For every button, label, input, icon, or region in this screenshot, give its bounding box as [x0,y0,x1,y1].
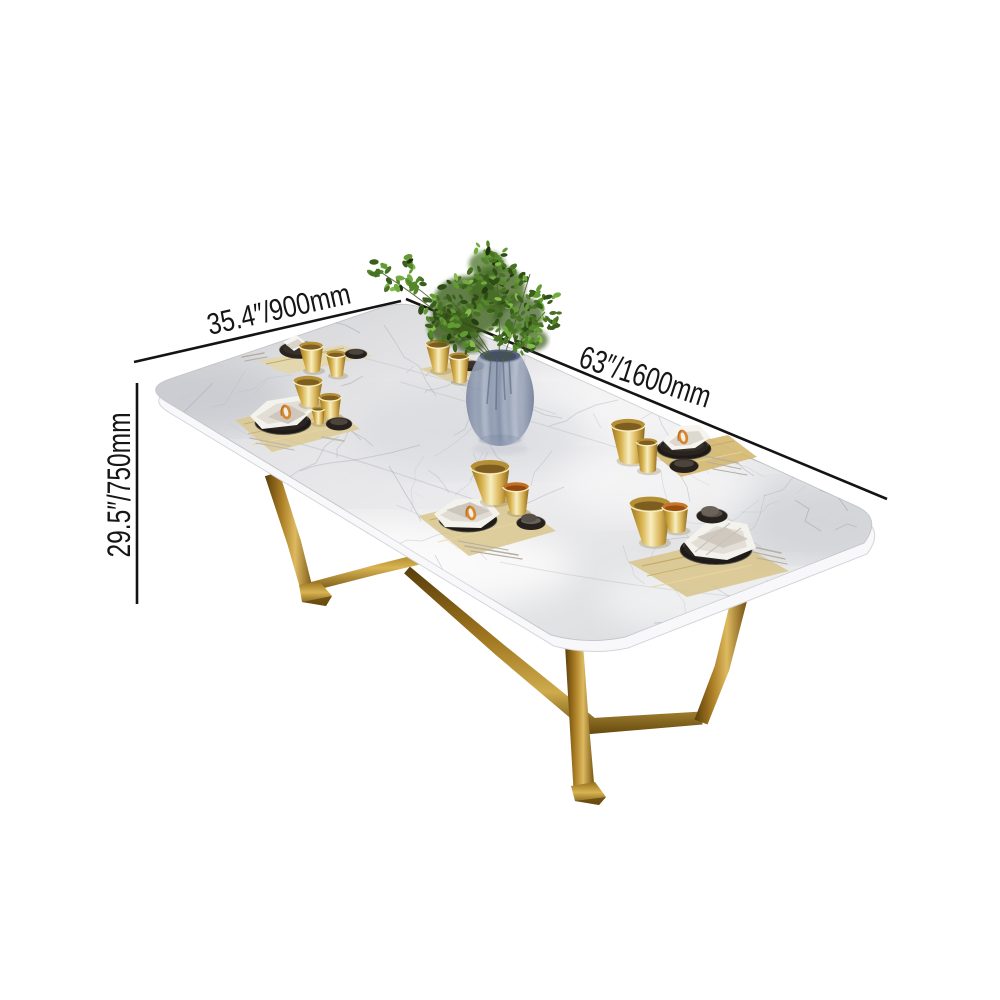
svg-text:29.5″/750mm: 29.5″/750mm [101,413,137,558]
